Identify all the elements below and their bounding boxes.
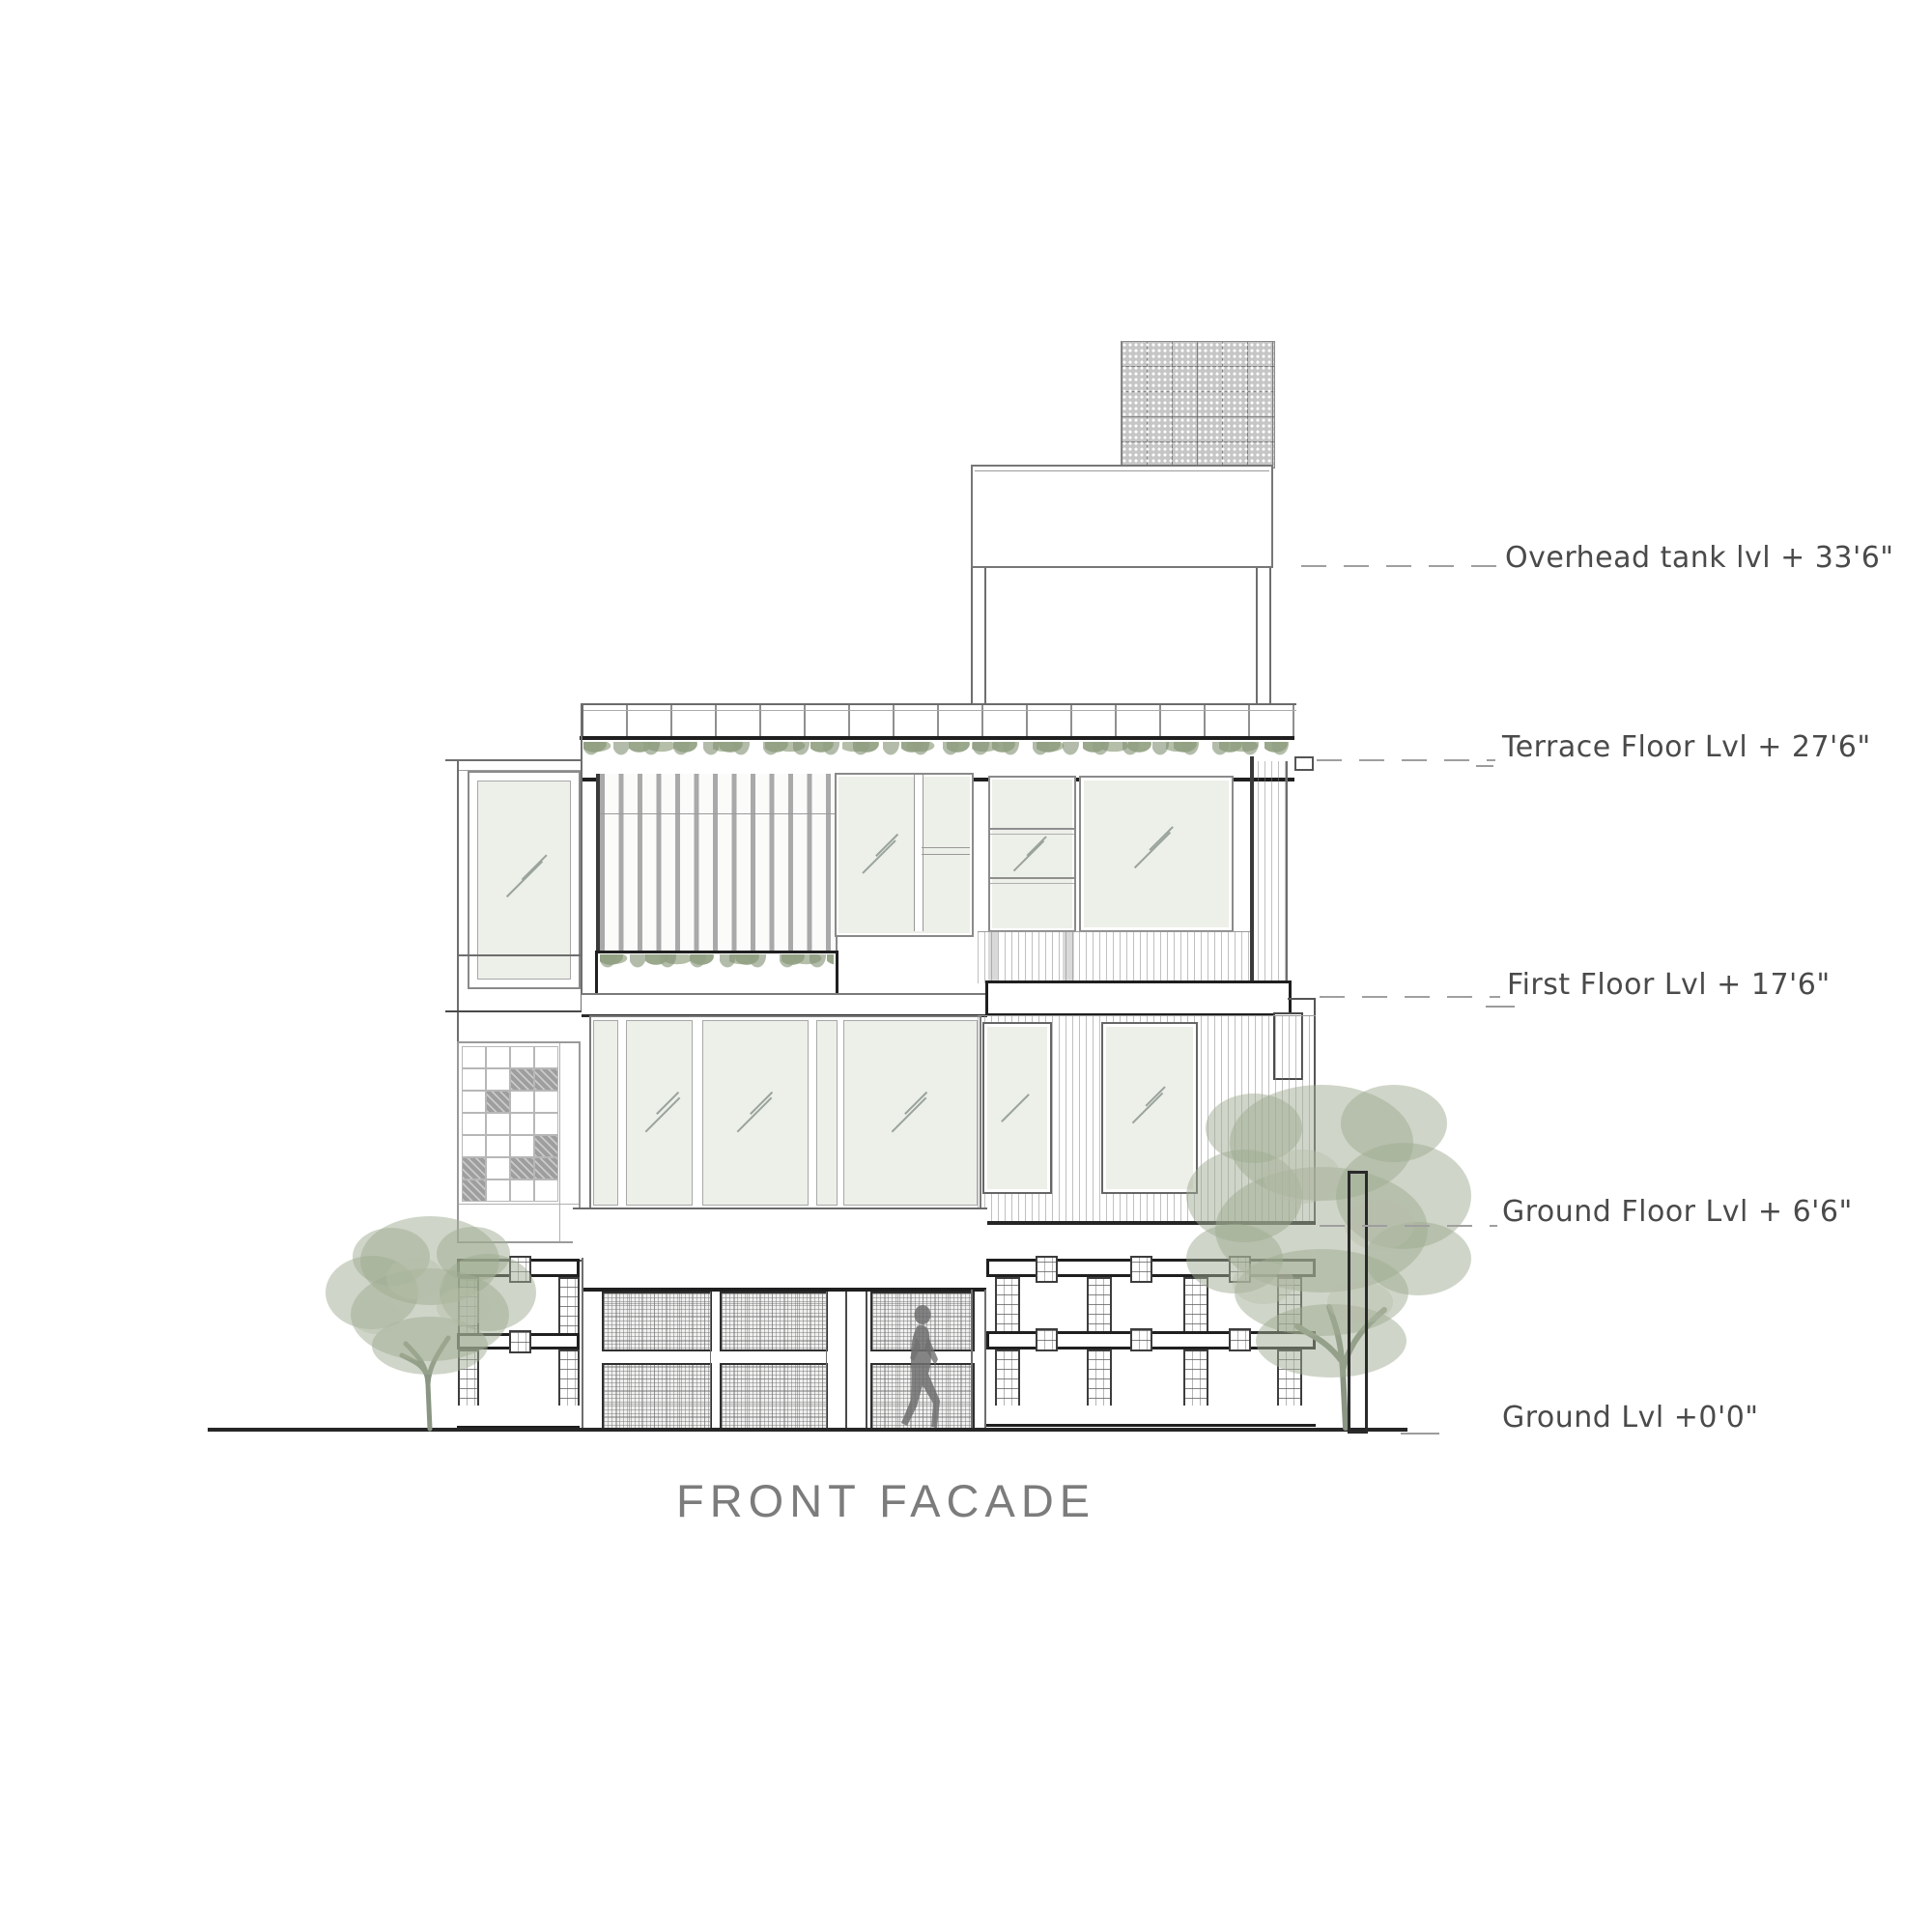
window-divider (990, 877, 1074, 879)
shutter-right-pier-line (971, 1290, 973, 1428)
tile (510, 1113, 534, 1135)
storefront-pane (843, 1020, 978, 1206)
balcony-planter-foliage (600, 954, 834, 993)
glass-reflection-mark (645, 1097, 681, 1133)
tile-shaded (486, 1091, 510, 1113)
perforated-shutter (720, 1292, 828, 1432)
right-ledge-line (1288, 998, 1316, 1000)
tank-room-inner-line (975, 470, 1269, 471)
terrace-parapet-railing (582, 703, 1296, 738)
glass-reflection-mark (506, 861, 543, 897)
right-wall-stone-pier (995, 1350, 1020, 1409)
tile (462, 1135, 486, 1157)
level-label-ground-floor: Ground Floor Lvl + 6'6" (1502, 1195, 1853, 1229)
tile-shaded (510, 1068, 534, 1091)
leader-overhead-tank (1301, 565, 1497, 567)
drawing-title: FRONT FACADE (676, 1474, 1063, 1527)
tile-shaded (534, 1157, 558, 1179)
tile (510, 1179, 534, 1202)
balcony-slat-screen (596, 774, 838, 951)
stair-mumty-wall-outer-left (971, 568, 973, 704)
leader-tick (1486, 1006, 1515, 1008)
tile (510, 1046, 534, 1068)
window-divider (990, 828, 1074, 830)
tile (486, 1135, 510, 1157)
parapet-rail-line (583, 710, 1296, 711)
right-wall-stone-pier (1087, 1277, 1112, 1335)
glass-reflection-mark (522, 855, 548, 881)
shopfront-left-pier-edge (582, 1258, 583, 1430)
right-wall-rail-block (1036, 1256, 1058, 1283)
right-cladding-band-upper (978, 931, 1254, 983)
storefront-pane (816, 1020, 838, 1206)
glass-reflection-mark (892, 1097, 927, 1133)
checkered-grid (462, 1046, 558, 1202)
tile (510, 1091, 534, 1113)
lintel-band-upper (573, 1207, 987, 1262)
left-wing-base-line (445, 1010, 590, 1012)
window-divider (990, 883, 1074, 884)
glass-reflection-mark (737, 1097, 773, 1133)
panel-edge-line (559, 1043, 560, 1241)
level-label-ground: Ground Lvl +0'0" (1502, 1401, 1759, 1435)
planter-end-tab (1294, 756, 1314, 771)
tile (462, 1091, 486, 1113)
tile (534, 1113, 558, 1135)
leader-tick (1476, 765, 1493, 767)
elevation-sheet: Overhead tank lvl + 33'6" Terrace Floor … (0, 0, 1932, 1932)
tile (486, 1046, 510, 1068)
glass-reflection-mark (750, 1092, 773, 1115)
overhead-tank-room (971, 465, 1273, 568)
leader-terrace-floor (1317, 759, 1495, 761)
mid-window-glass (838, 777, 970, 933)
tile (534, 1179, 558, 1202)
stair-mumty-wall-inner-right (1256, 568, 1258, 704)
level-label-terrace-floor: Terrace Floor Lvl + 27'6" (1502, 730, 1871, 764)
door-jamb-line (866, 1292, 867, 1428)
right-clad-window (982, 1022, 1052, 1194)
right-small-window (988, 776, 1076, 932)
storefront-pane (593, 1020, 618, 1206)
shutter-mid-rail (720, 1350, 828, 1365)
leader-first-floor (1320, 996, 1500, 998)
right-column-dark-edge (1250, 756, 1254, 982)
tile (486, 1179, 510, 1202)
second-floor-right-edge (1286, 761, 1288, 1010)
tile (486, 1157, 510, 1179)
mid-window-divider (922, 847, 970, 848)
storefront-pane (626, 1020, 693, 1206)
tile (486, 1068, 510, 1091)
tile-shaded (534, 1068, 558, 1091)
left-wing-window-glass (477, 781, 571, 980)
tile-shaded (534, 1135, 558, 1157)
leader-tick (1401, 1433, 1439, 1435)
slat-screen-rail-line (600, 813, 836, 814)
door-jamb-line (845, 1292, 847, 1428)
tile (510, 1135, 534, 1157)
tile-shaded (462, 1157, 486, 1179)
shutter-pier-line (826, 1292, 827, 1428)
tile-shaded (510, 1157, 534, 1179)
mid-window-divider (922, 854, 970, 855)
tree-left (319, 1201, 541, 1433)
stair-mumty-wall-outer-right (1269, 568, 1271, 704)
stair-mumty-wall-inner-left (984, 568, 986, 704)
left-wing-window (468, 771, 581, 989)
first-floor-slab-left (582, 993, 987, 1017)
perforated-shutter (602, 1292, 712, 1432)
left-wall-stone-pier (558, 1350, 580, 1409)
tile (486, 1113, 510, 1135)
right-wall-rail-block (1130, 1328, 1152, 1351)
glass-reflection-mark (904, 1092, 927, 1115)
right-wall-stone-pier (1087, 1350, 1112, 1409)
level-label-first-floor: First Floor Lvl + 17'6" (1507, 968, 1831, 1002)
right-small-window-glass (992, 780, 1072, 928)
level-label-overhead-tank: Overhead tank lvl + 33'6" (1505, 541, 1894, 575)
tile (462, 1046, 486, 1068)
tile (534, 1046, 558, 1068)
left-wing-sill-line (457, 954, 581, 956)
left-wall-stone-pier (558, 1277, 580, 1337)
storefront-pane (702, 1020, 809, 1206)
first-floor-slab-right (985, 980, 1292, 1016)
right-wall-rail-block (1130, 1256, 1152, 1283)
overhead-tank-jali-block (1121, 341, 1275, 469)
right-clad-window-glass (987, 1027, 1047, 1189)
left-bay-wall-edge (581, 703, 582, 1012)
mid-window (835, 773, 974, 937)
cladding-shade (1063, 932, 1074, 983)
tile (462, 1113, 486, 1135)
right-wall-stone-pier (995, 1277, 1020, 1335)
cladding-shade (988, 932, 998, 983)
mid-window-mullion (914, 775, 923, 931)
right-louver-strip (1258, 761, 1287, 1010)
shutter-mid-rail (602, 1350, 712, 1365)
tile (534, 1091, 558, 1113)
tile (462, 1068, 486, 1091)
right-wall-rail-block (1036, 1328, 1058, 1351)
gate-post (1348, 1171, 1368, 1434)
leader-ground-floor (1320, 1225, 1497, 1227)
window-divider (990, 834, 1074, 835)
tree-right (1167, 1051, 1476, 1430)
shutter-pier-line (710, 1292, 711, 1428)
lintel-band-lower (582, 1258, 986, 1292)
right-large-window (1079, 776, 1234, 932)
person-silhouette (896, 1304, 954, 1430)
right-large-window-glass (1084, 781, 1229, 927)
tile-shaded (462, 1179, 486, 1202)
left-wing-top-edge (445, 759, 581, 761)
